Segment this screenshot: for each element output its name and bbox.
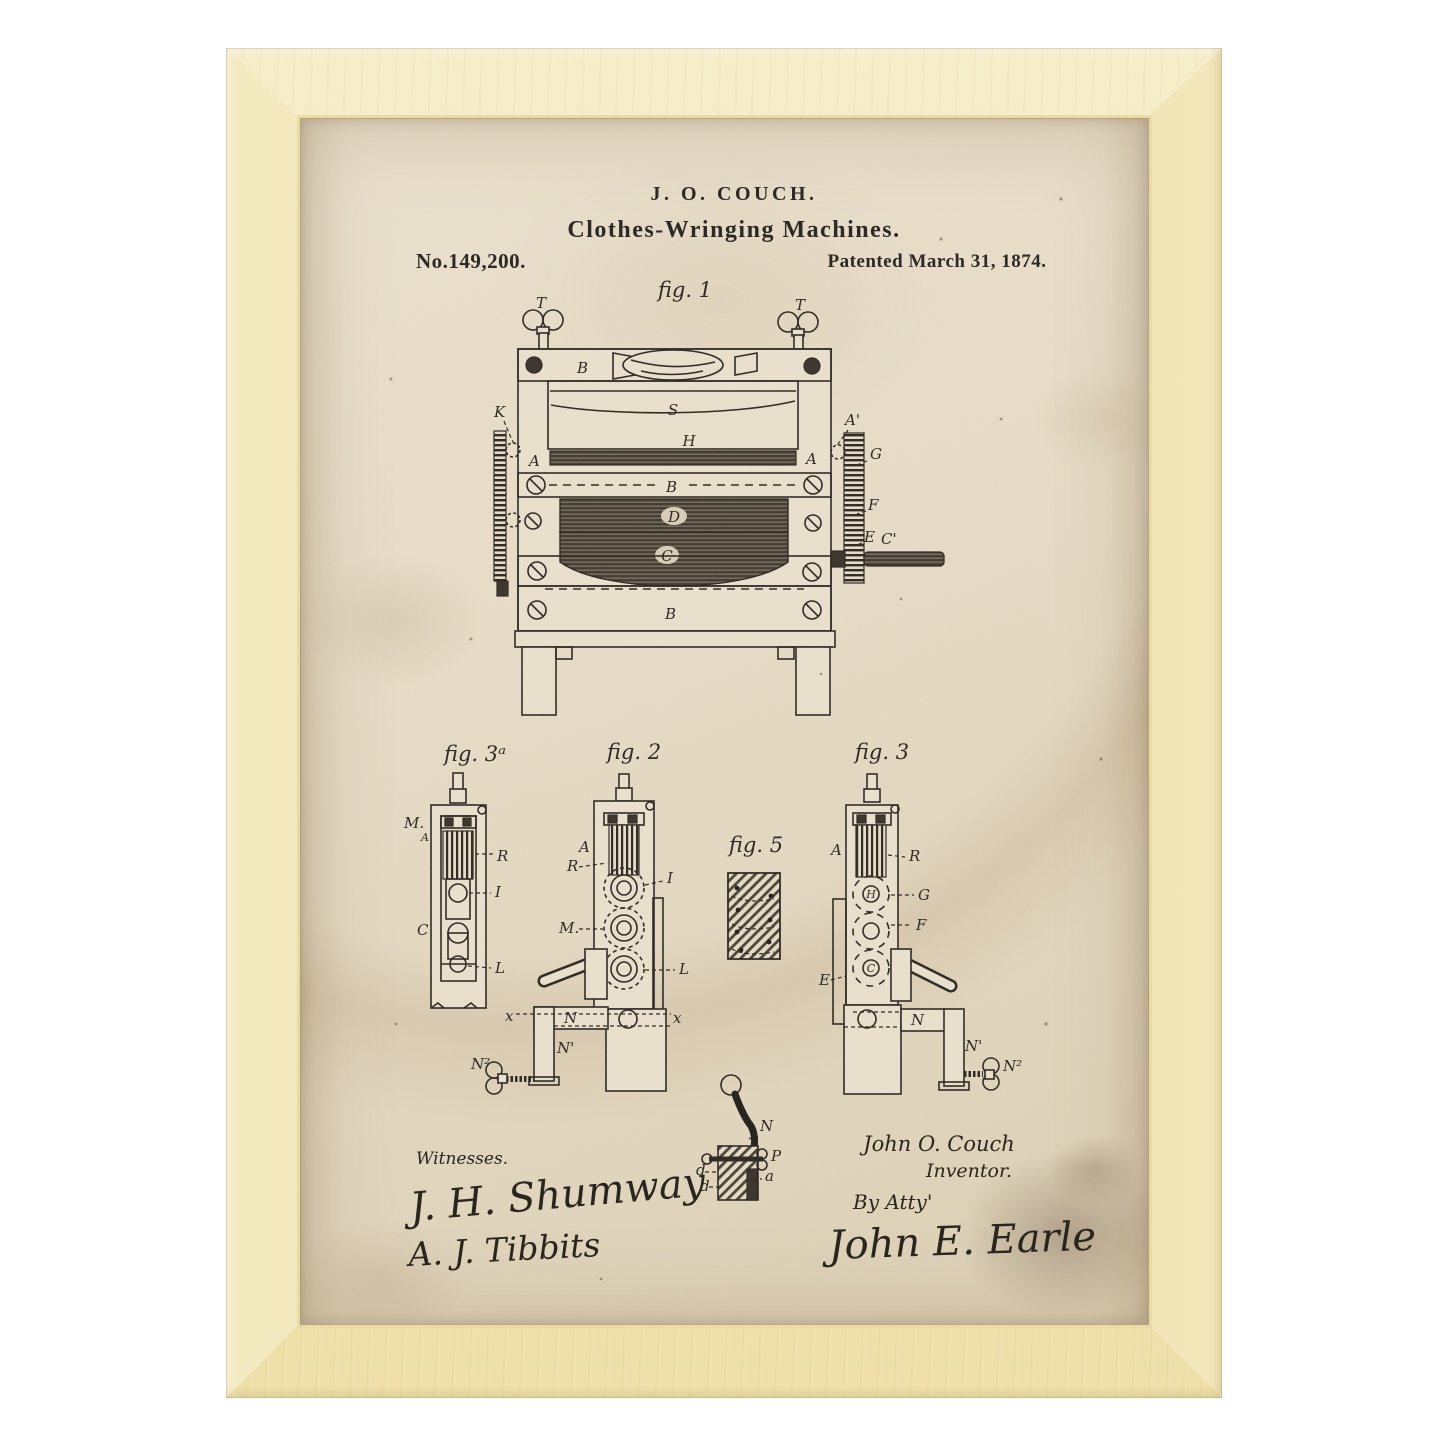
patent-paper: J. O. COUCH. Clothes-Wringing Machines. … bbox=[300, 118, 1149, 1325]
patent-drawing: J. O. COUCH. Clothes-Wringing Machines. … bbox=[301, 119, 1148, 1324]
wooden-frame: J. O. COUCH. Clothes-Wringing Machines. … bbox=[226, 48, 1222, 1398]
framed-patent-print-photo: J. O. COUCH. Clothes-Wringing Machines. … bbox=[0, 0, 1445, 1445]
paper-grain-overlay bbox=[301, 119, 1148, 1324]
